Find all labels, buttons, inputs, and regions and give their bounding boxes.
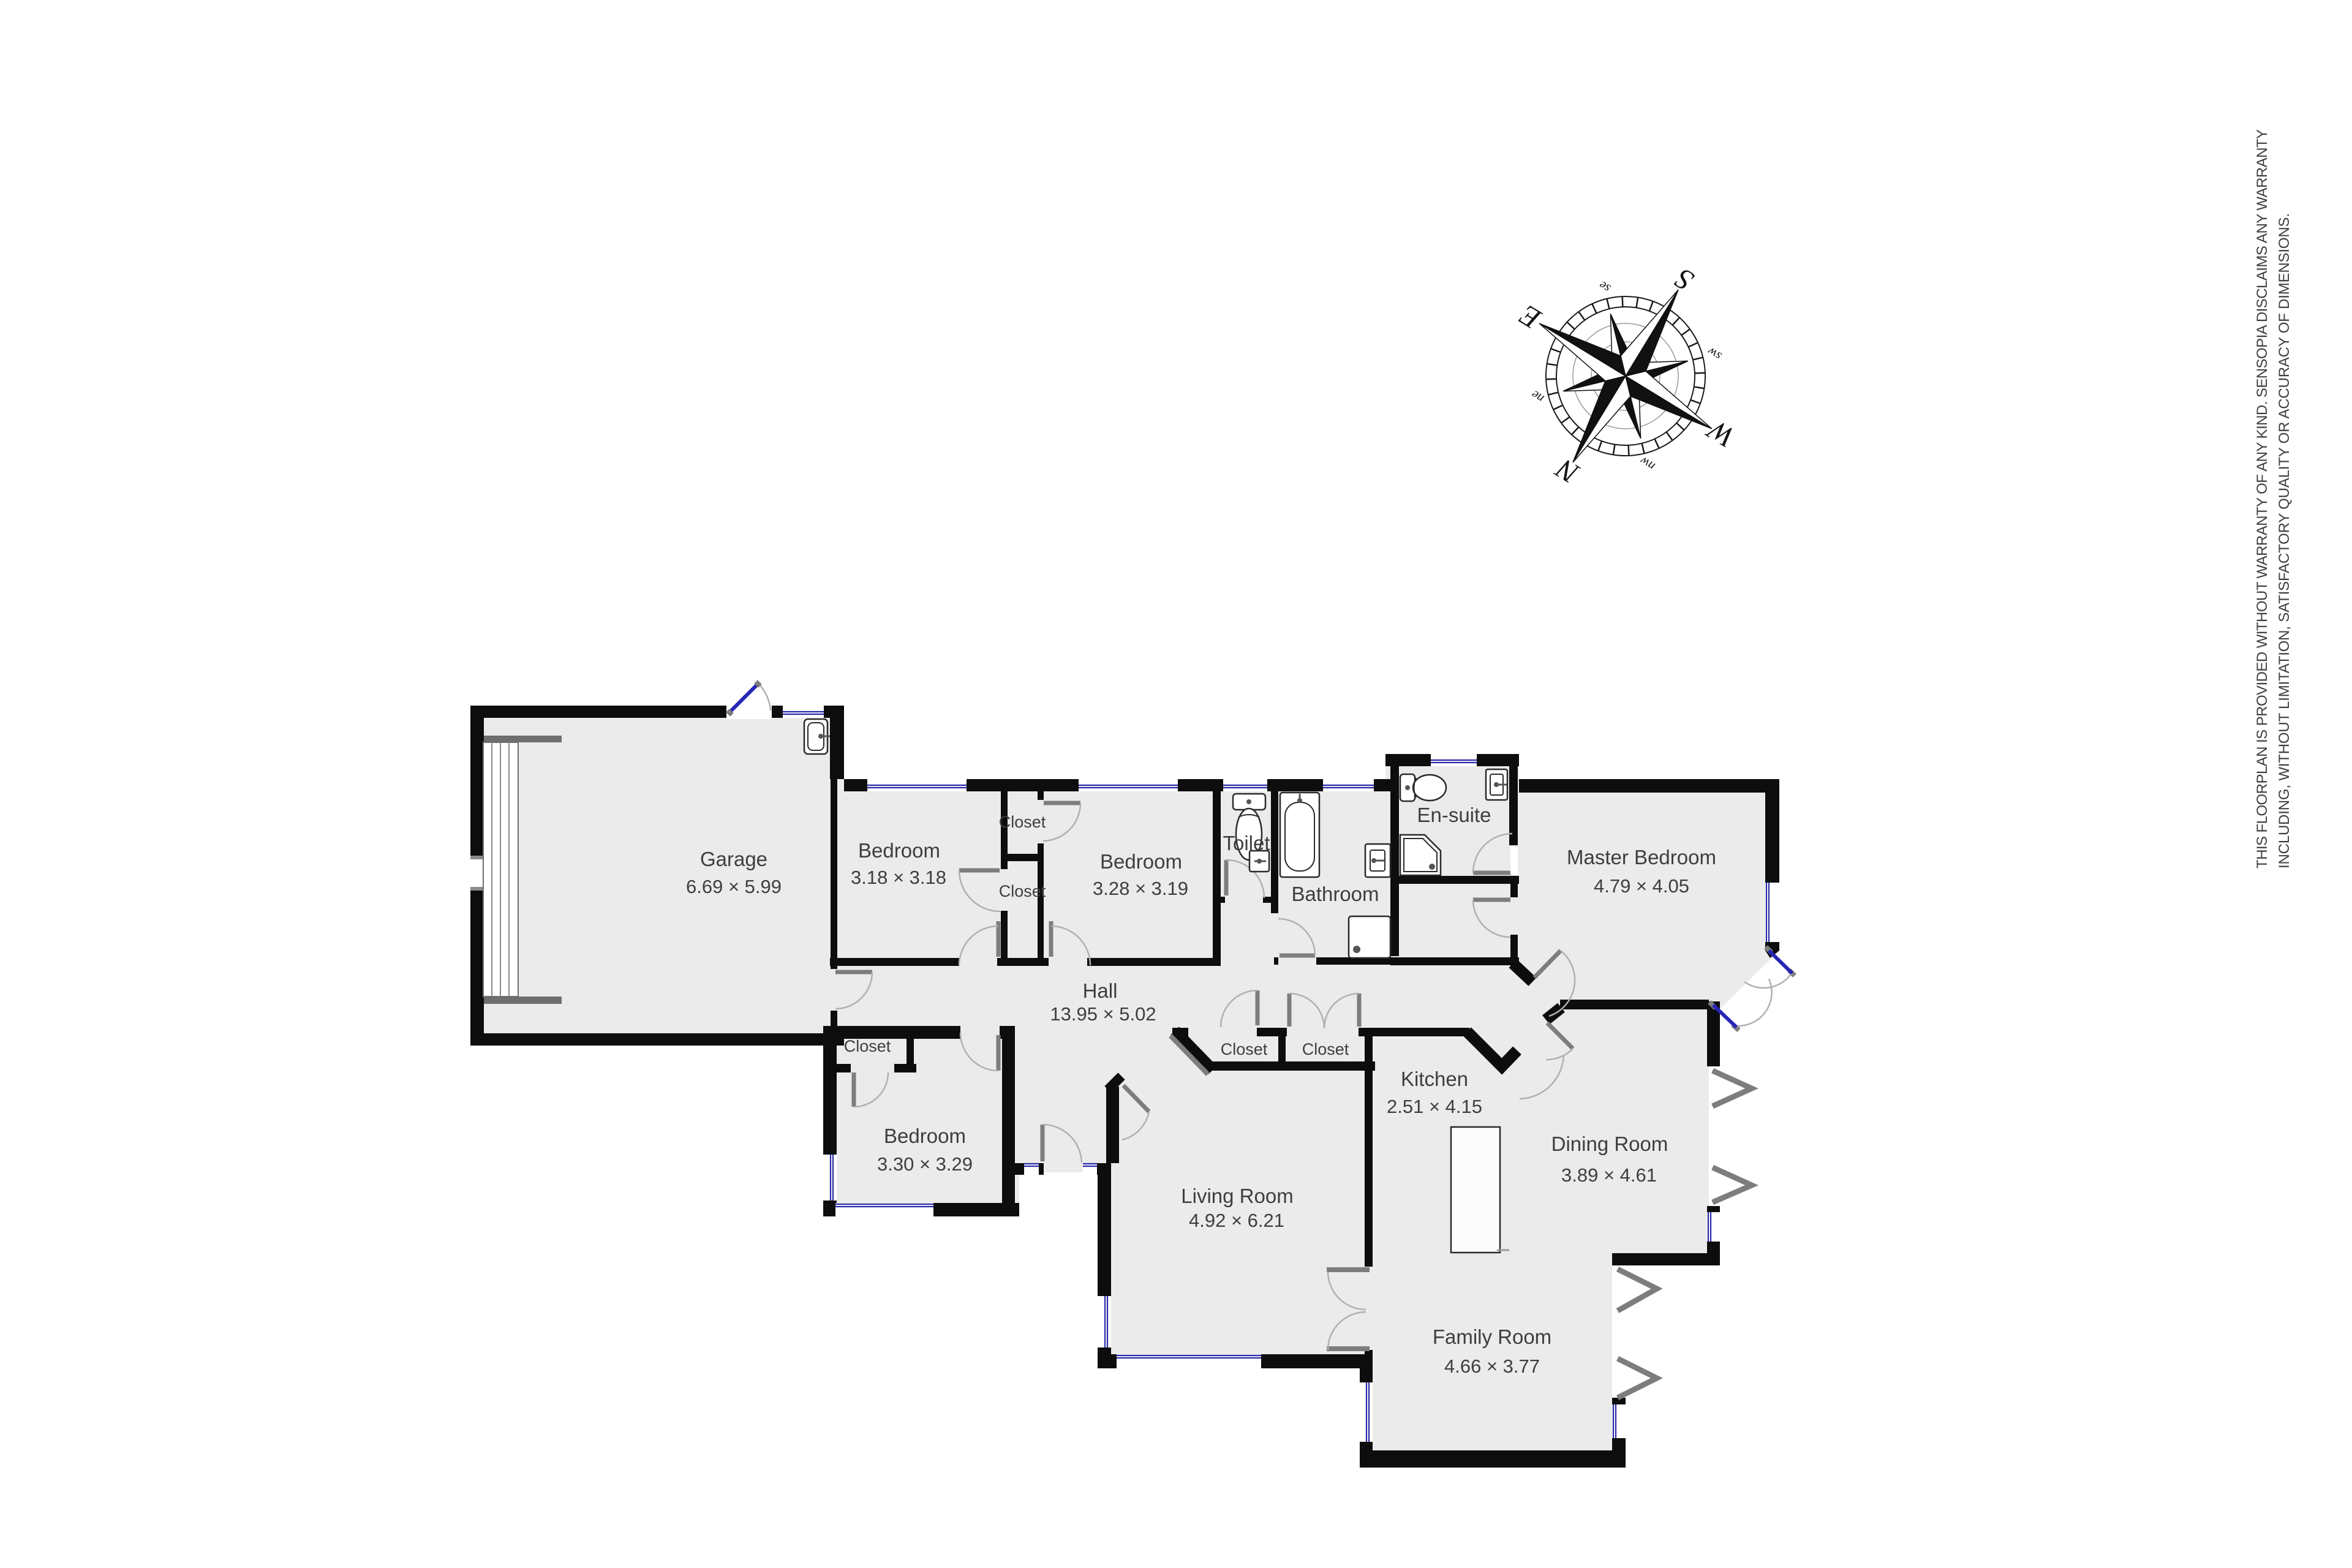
svg-text:Closet: Closet bbox=[999, 813, 1046, 831]
svg-text:Dining Room: Dining Room bbox=[1551, 1133, 1668, 1155]
svg-text:4.79 × 4.05: 4.79 × 4.05 bbox=[1594, 875, 1689, 897]
svg-text:ne: ne bbox=[1528, 388, 1546, 407]
svg-text:Closet: Closet bbox=[999, 882, 1046, 900]
svg-text:3.30 × 3.29: 3.30 × 3.29 bbox=[877, 1153, 973, 1175]
svg-text:Closet: Closet bbox=[1221, 1040, 1268, 1058]
svg-text:3.28 × 3.19: 3.28 × 3.19 bbox=[1093, 878, 1188, 899]
svg-text:Living Room: Living Room bbox=[1181, 1185, 1293, 1207]
svg-text:Family Room: Family Room bbox=[1433, 1325, 1551, 1348]
svg-text:W: W bbox=[1701, 412, 1741, 454]
svg-text:2.51 × 4.15: 2.51 × 4.15 bbox=[1387, 1096, 1482, 1117]
svg-text:Bathroom: Bathroom bbox=[1291, 883, 1379, 905]
svg-text:se: se bbox=[1596, 278, 1613, 296]
svg-text:Kitchen: Kitchen bbox=[1401, 1068, 1468, 1090]
svg-text:Master Bedroom: Master Bedroom bbox=[1567, 846, 1716, 869]
svg-text:Closet: Closet bbox=[1302, 1040, 1349, 1058]
svg-text:S: S bbox=[1670, 262, 1699, 298]
svg-text:Closet: Closet bbox=[844, 1037, 891, 1055]
svg-text:Toilet: Toilet bbox=[1223, 832, 1270, 854]
svg-text:Hall: Hall bbox=[1083, 979, 1118, 1002]
svg-text:N: N bbox=[1549, 451, 1585, 490]
svg-text:Garage: Garage bbox=[700, 848, 767, 870]
svg-text:THIS FLOORPLAN IS PROVIDED WIT: THIS FLOORPLAN IS PROVIDED WITHOUT WARRA… bbox=[2254, 129, 2271, 869]
svg-text:Bedroom: Bedroom bbox=[858, 839, 940, 862]
svg-text:13.95 × 5.02: 13.95 × 5.02 bbox=[1050, 1003, 1156, 1025]
svg-text:3.18 × 3.18: 3.18 × 3.18 bbox=[851, 867, 946, 888]
svg-text:INCLUDING, WITHOUT LIMITATION,: INCLUDING, WITHOUT LIMITATION, SATISFACT… bbox=[2276, 213, 2293, 869]
svg-text:6.69 × 5.99: 6.69 × 5.99 bbox=[686, 876, 782, 897]
svg-text:E: E bbox=[1514, 298, 1547, 336]
svg-text:En-suite: En-suite bbox=[1417, 804, 1491, 826]
svg-text:Bedroom: Bedroom bbox=[1100, 850, 1182, 873]
svg-text:sw: sw bbox=[1705, 344, 1724, 364]
svg-text:4.92 × 6.21: 4.92 × 6.21 bbox=[1189, 1210, 1284, 1231]
svg-text:4.66 × 3.77: 4.66 × 3.77 bbox=[1444, 1355, 1540, 1377]
svg-text:nw: nw bbox=[1637, 454, 1657, 474]
svg-text:Bedroom: Bedroom bbox=[884, 1125, 966, 1147]
svg-text:3.89 × 4.61: 3.89 × 4.61 bbox=[1561, 1164, 1657, 1186]
